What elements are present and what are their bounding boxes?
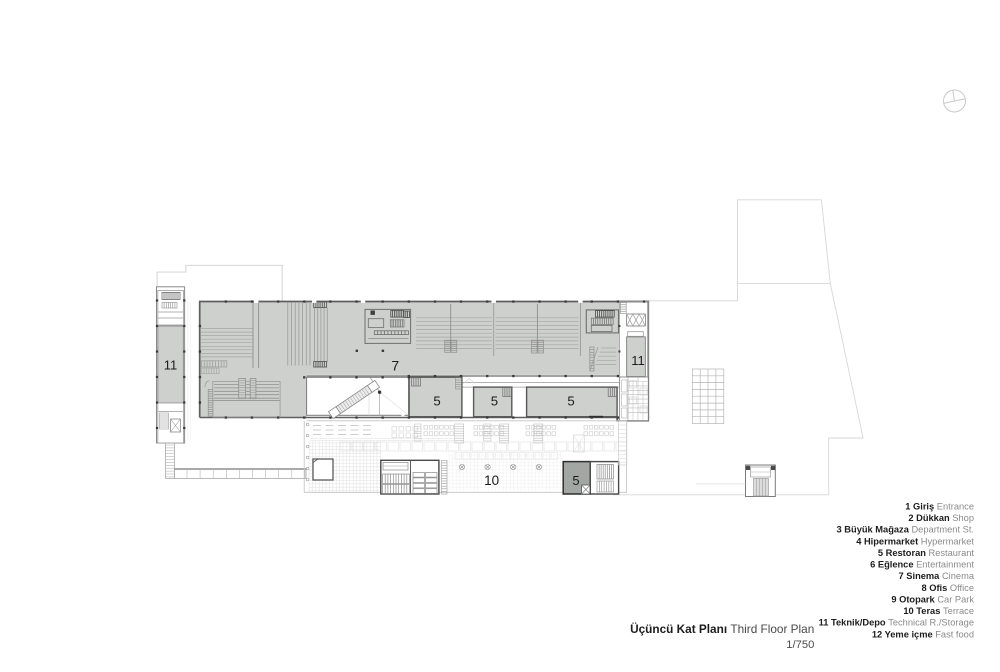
svg-text:2 Dükkan Shop: 2 Dükkan Shop [908,513,974,523]
svg-text:8 Ofis Office: 8 Ofis Office [921,583,974,593]
svg-text:6 Eğlence Entertainment: 6 Eğlence Entertainment [870,560,974,570]
svg-text:Üçüncü Kat Planı Third Floor P: Üçüncü Kat Planı Third Floor Plan [630,622,814,636]
svg-text:12 Yeme içme Fast food: 12 Yeme içme Fast food [872,629,974,639]
svg-text:7: 7 [391,358,399,374]
svg-text:5: 5 [433,393,440,408]
svg-text:7 Sinema Cinema: 7 Sinema Cinema [899,571,975,581]
svg-text:1/750: 1/750 [786,639,814,651]
svg-text:11: 11 [164,358,178,373]
svg-text:5: 5 [572,473,579,488]
svg-text:3 Büyük Mağaza Department St.: 3 Büyük Mağaza Department St. [837,525,974,535]
svg-text:4 Hipermarket Hypermarket: 4 Hipermarket Hypermarket [856,536,974,546]
svg-text:10 Teras Terrace: 10 Teras Terrace [903,606,974,616]
svg-text:1 Giriş Entrance: 1 Giriş Entrance [905,502,974,512]
svg-text:5 Restoran Restaurant: 5 Restoran Restaurant [878,548,975,558]
svg-text:9 Otopark Car Park: 9 Otopark Car Park [891,595,974,605]
svg-text:10: 10 [484,473,499,488]
svg-text:11 Teknik/Depo Technical R./St: 11 Teknik/Depo Technical R./Storage [819,618,974,628]
svg-text:11: 11 [631,353,645,368]
svg-text:5: 5 [567,394,574,409]
svg-text:5: 5 [491,394,498,409]
